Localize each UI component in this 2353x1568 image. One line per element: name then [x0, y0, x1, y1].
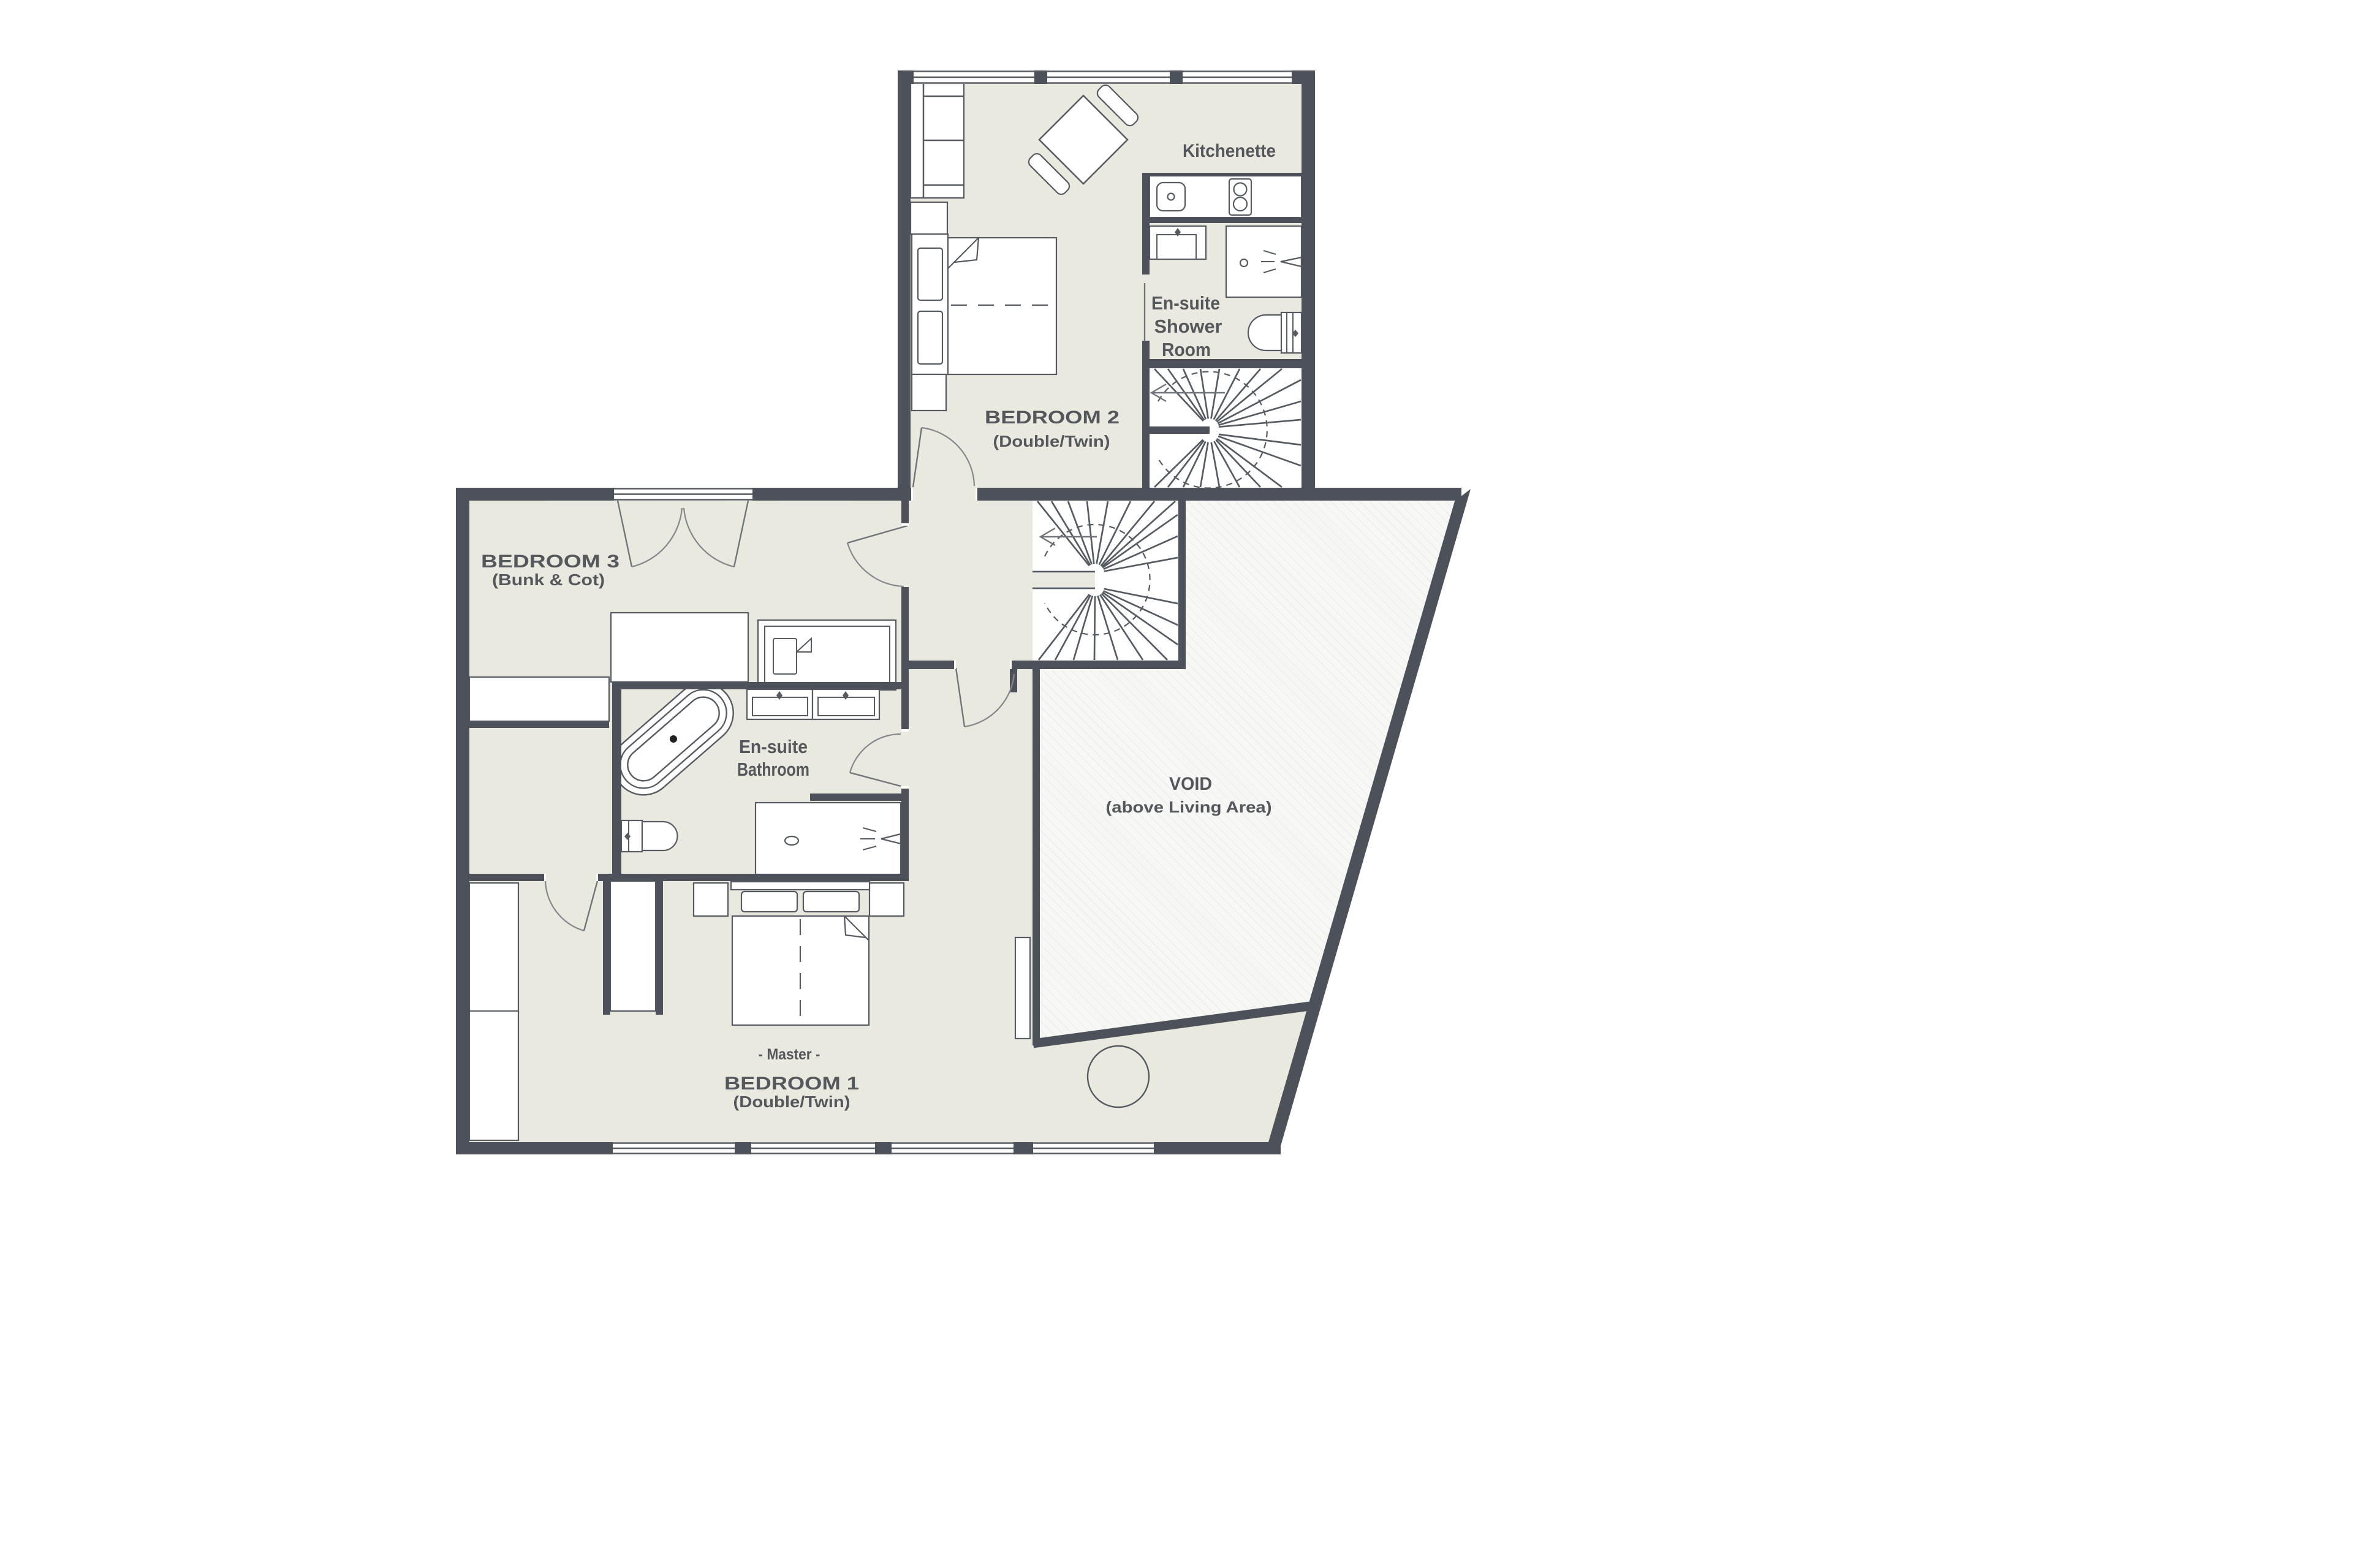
svg-text:Room: Room [1162, 339, 1211, 360]
svg-text:BEDROOM 3: BEDROOM 3 [481, 551, 620, 572]
svg-text:En-suite: En-suite [1151, 292, 1220, 314]
svg-text:BEDROOM 1: BEDROOM 1 [724, 1074, 859, 1094]
svg-text:En-suite: En-suite [739, 736, 808, 757]
svg-text:(Bunk & Cot): (Bunk & Cot) [492, 570, 605, 589]
svg-text:Kitchenette: Kitchenette [1183, 141, 1276, 161]
svg-text:Bathroom: Bathroom [737, 759, 809, 780]
svg-text:(Double/Twin): (Double/Twin) [993, 432, 1110, 450]
svg-text:BEDROOM 2: BEDROOM 2 [985, 407, 1120, 428]
svg-text:(above Living Area): (above Living Area) [1106, 798, 1272, 816]
svg-text:(Double/Twin): (Double/Twin) [733, 1093, 851, 1111]
svg-text:- Master -: - Master - [759, 1046, 820, 1063]
svg-text:VOID: VOID [1169, 774, 1212, 794]
svg-text:Shower: Shower [1154, 316, 1222, 337]
